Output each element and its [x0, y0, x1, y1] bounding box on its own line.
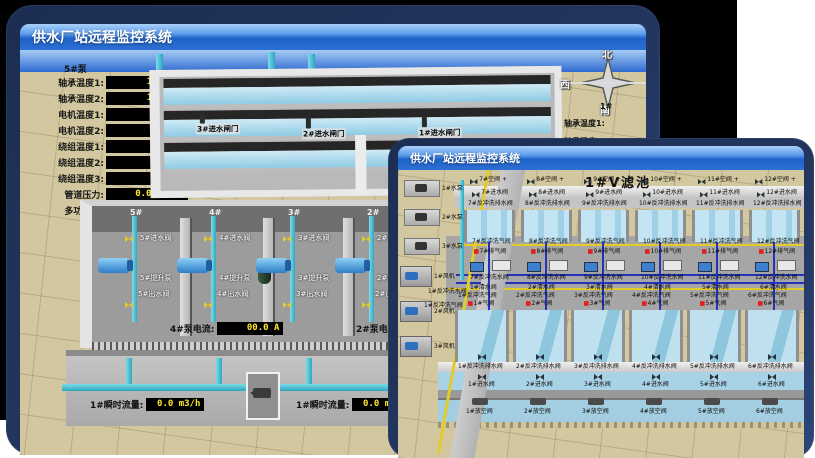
- inlet-valve-label: 3#进水阀: [298, 234, 329, 242]
- air-valve-label: 8#空阀 +: [527, 176, 564, 182]
- empty-valve-label: 2#放空阀: [524, 408, 551, 414]
- inlet-valve-label: 4#进水阀: [642, 381, 669, 387]
- bw-drain-valve-label: 4#反冲洗排水阀: [632, 363, 677, 369]
- bw-air-valve-label: 10#反冲洗气阀: [643, 238, 686, 244]
- air-valve-label: 6#气阀: [758, 300, 784, 306]
- inlet-valve-label: 6#进水阀: [758, 381, 785, 387]
- valve-actuator[interactable]: [698, 262, 712, 272]
- desktop: { "back_window": { "title": "供水厂站远程监控系统"…: [0, 0, 815, 420]
- front-window-title: 供水厂站远程监控系统: [410, 150, 520, 166]
- bw-air-valve-label: 7#反冲洗气阀: [472, 238, 511, 244]
- bw-drain-valve-label: 1#反冲洗排水阀: [458, 363, 503, 369]
- blower-list: 1#风机 2#风机 3#风机: [400, 266, 457, 371]
- exhaust-valve-label: 10#排气阀: [645, 248, 681, 254]
- back-window-titlebar[interactable]: 供水厂站远程监控系统: [20, 24, 646, 50]
- front-window-card: 供水厂站远程监控系统 1#V滤池: [388, 138, 814, 458]
- exhaust-valve-label: 11#排气阀: [702, 248, 738, 254]
- air-valve-icon[interactable]: [758, 301, 763, 306]
- clear-water-valve-label: 3#清水阀: [586, 284, 613, 290]
- pump-platform: [404, 180, 440, 197]
- drain-pump-icon[interactable]: [472, 398, 488, 405]
- exhaust-valve-icon[interactable]: [759, 249, 764, 254]
- gate-label: 1#进水闸门: [418, 127, 462, 138]
- bw-drain-valve-label: 12#反冲洗排水阀: [753, 200, 802, 206]
- pump-list: 1#水泵 2#水泵 3#水泵: [404, 180, 465, 267]
- clear-water-valve-label: 5#清水阀: [702, 284, 729, 290]
- bw-water-valve-label: 10#反冲洗水阀: [641, 274, 684, 280]
- flow-value: 0.0 m3/h: [146, 398, 204, 411]
- motor-icon: [405, 272, 418, 280]
- outlet-valve-label: 4#出水阀: [217, 290, 248, 298]
- air-valve-label: 11#空阀 +: [698, 176, 739, 182]
- pump-platform: [404, 238, 440, 255]
- air-valve-label: 5#气阀: [700, 300, 726, 306]
- partial-readout-label: 轴承温度1:: [564, 118, 605, 129]
- exhaust-valve-icon[interactable]: [474, 249, 479, 254]
- water-pump[interactable]: 1#水泵: [404, 180, 465, 197]
- bw-drain-valve-label: 2#反冲洗排水阀: [516, 363, 561, 369]
- lift-pump[interactable]: [256, 258, 288, 273]
- blower-label: 1#风机: [434, 273, 455, 279]
- empty-valve-label: 3#放空阀: [582, 408, 609, 414]
- motor-icon: [405, 307, 418, 315]
- current-label: 4#泵电流:: [170, 322, 214, 335]
- readout-label: 轴承温度2:: [22, 92, 106, 105]
- booster-station[interactable]: [246, 372, 280, 420]
- readout-label: 绕组温度3:: [22, 172, 106, 185]
- filter-cell-column: 3#清水阀 3#反冲洗气阀 3#气阀 3#反冲洗排水阀 3#进水阀 3#放空阀: [570, 284, 628, 424]
- bw-water-valve-label: 8#反冲洗水阀: [527, 274, 566, 280]
- lift-pump-label: 5#提升泵: [140, 274, 171, 282]
- pump-platform: [404, 209, 440, 226]
- exhaust-valve-label: 9#排气阀: [588, 248, 620, 254]
- inlet-valve-label: 2#进水阀: [526, 381, 553, 387]
- outlet-valve-label: 5#出水阀: [138, 290, 169, 298]
- exhaust-valve-icon[interactable]: [531, 249, 536, 254]
- partial-tag: 1#: [600, 102, 612, 111]
- bw-air-valve-label: 11#反冲洗气阀: [700, 238, 743, 244]
- valve-actuator[interactable]: [755, 262, 769, 272]
- water-pump-label: 2#水泵: [442, 214, 463, 220]
- bw-water-valve-label: 7#反冲洗水阀: [470, 274, 509, 280]
- lift-pump-label: 4#提升泵: [219, 274, 250, 282]
- exhaust-valve-label: 7#排气阀: [474, 248, 506, 254]
- flow-readout-left: 1#瞬时流量: 0.0 m3/h: [90, 398, 204, 411]
- bw-air-valve-label: 8#反冲洗气阀: [529, 238, 568, 244]
- pump-bay: 4# 4#进水阀 4#提升泵 4#出水阀: [175, 206, 254, 326]
- air-valve-icon[interactable]: [700, 301, 705, 306]
- water-pump-label: 1#水泵: [442, 185, 463, 191]
- valve-actuator[interactable]: [527, 262, 541, 272]
- inlet-valve-label: 12#进水阀: [757, 189, 797, 195]
- gate-label: 2#进水闸门: [302, 128, 346, 139]
- bw-air-valve-label: 2#反冲洗气阀: [516, 292, 555, 298]
- bw-air-valve-label: 3#反冲洗气阀: [574, 292, 613, 298]
- air-valve-label: 9#空阀 +: [584, 176, 621, 182]
- valve-actuator[interactable]: [584, 262, 598, 272]
- water-pump-label: 3#水泵: [442, 243, 463, 249]
- filter-cell-column: 1#清水阀 1#反冲洗气阀 1#气阀 1#反冲洗排水阀 1#进水阀 1#放空阀: [454, 284, 512, 424]
- lift-pump[interactable]: [177, 258, 209, 273]
- clear-water-valve-label: 6#清水阀: [760, 284, 787, 290]
- bottom-cell-grid: 1#清水阀 1#反冲洗气阀 1#气阀 1#反冲洗排水阀 1#进水阀 1#放空阀 …: [454, 284, 802, 424]
- bw-water-valve-label: 9#反冲洗水阀: [584, 274, 623, 280]
- valve-actuator[interactable]: [470, 262, 484, 272]
- drain-pump-icon[interactable]: [530, 398, 546, 405]
- inlet-valve-label: 5#进水阀: [140, 234, 171, 242]
- empty-valve-label: 5#放空阀: [698, 408, 725, 414]
- air-valve-label: 1#气阀: [468, 300, 494, 306]
- current-readout-left: 4#泵电流: 00.0 A: [170, 322, 283, 335]
- readout-label: 电机温度2:: [22, 124, 106, 137]
- clear-water-valve-label: 1#清水阀: [470, 284, 497, 290]
- blower[interactable]: 3#风机: [400, 336, 457, 357]
- blower-box: [400, 336, 432, 357]
- readout-label: 管道压力:: [22, 188, 106, 201]
- pump-icon: [415, 213, 427, 221]
- air-valve-icon[interactable]: [642, 301, 647, 306]
- air-valve-label: 10#空阀 +: [641, 176, 682, 182]
- compass-north: 北: [602, 50, 612, 61]
- gate-valve-icon[interactable]: [422, 116, 427, 127]
- water-pump[interactable]: 3#水泵: [404, 238, 465, 255]
- flow-label: 1#瞬时流量:: [90, 398, 143, 411]
- inlet-valve-label: 11#进水阀: [700, 189, 740, 195]
- air-valve-icon[interactable]: [584, 301, 589, 306]
- console-box[interactable]: [606, 260, 625, 271]
- bw-drain-valve-label: 6#反冲洗排水阀: [748, 363, 793, 369]
- outlet-valve-label: 3#出水阀: [296, 290, 327, 298]
- inlet-valve-label: 10#进水阀: [643, 189, 683, 195]
- inlet-valve-label: 1#进水阀: [468, 381, 495, 387]
- empty-valve-label: 1#放空阀: [466, 408, 493, 414]
- flow-label: 1#瞬时流量:: [296, 398, 349, 411]
- inlet-valve-label: 9#进水阀: [586, 189, 622, 195]
- exhaust-valve-icon[interactable]: [645, 249, 650, 254]
- air-valve-label: 7#空阀 +: [470, 176, 507, 182]
- clear-water-valve-label: 2#清水阀: [528, 284, 555, 290]
- filter-cell-column: 2#清水阀 2#反冲洗气阀 2#气阀 2#反冲洗排水阀 2#进水阀 2#放空阀: [512, 284, 570, 424]
- inlet-gate[interactable]: 1#进水闸门: [418, 116, 462, 138]
- readout-label: 轴承温度1:: [22, 76, 106, 89]
- empty-valve-label: 6#放空阀: [756, 408, 783, 414]
- bw-drain-valve-label: 3#反冲洗排水阀: [574, 363, 619, 369]
- pump-icon: [253, 388, 271, 398]
- drain-pump-icon[interactable]: [762, 398, 778, 405]
- console-box[interactable]: [777, 260, 796, 271]
- valve-actuator[interactable]: [641, 262, 655, 272]
- pump-icon: [415, 242, 427, 250]
- bw-air-valve-label: 9#反冲洗气阀: [586, 238, 625, 244]
- inlet-valve-label: 4#进水阀: [219, 234, 250, 242]
- drain-pump-icon[interactable]: [646, 398, 662, 405]
- motor-icon: [405, 342, 418, 350]
- bw-air-valve-label: 5#反冲洗气阀: [690, 292, 729, 298]
- console-box[interactable]: [492, 260, 511, 271]
- lift-pump-label: 3#提升泵: [298, 274, 329, 282]
- inlet-gate[interactable]: 3#进水闸门: [196, 112, 240, 134]
- bw-air-valve-label: 6#反冲洗气阀: [748, 292, 787, 298]
- blower-label: 2#风机: [434, 308, 455, 314]
- pump-icon: [415, 184, 427, 192]
- bw-drain-valve-label: 5#反冲洗排水阀: [690, 363, 735, 369]
- blower-label: 3#风机: [434, 343, 455, 349]
- air-valve-label: 12#空阀 +: [755, 176, 796, 182]
- drain-pump-icon[interactable]: [704, 398, 720, 405]
- gate-label: 3#进水闸门: [196, 123, 240, 134]
- exhaust-valve-icon[interactable]: [702, 249, 707, 254]
- blower-box: [400, 266, 432, 287]
- air-valve-icon[interactable]: [526, 301, 531, 306]
- lift-pump[interactable]: [335, 258, 367, 273]
- air-valve-label: 4#气阀: [642, 300, 668, 306]
- bw-drain-valve-label: 10#反冲洗排水阀: [639, 200, 688, 206]
- lift-pump[interactable]: [98, 258, 130, 273]
- gate-valve-icon[interactable]: [306, 117, 311, 128]
- gate-valve-icon[interactable]: [200, 113, 205, 124]
- pump-bay: 5# 5#进水阀 5#提升泵 5#出水阀: [96, 206, 175, 326]
- pump-bays: 5# 5#进水阀 5#提升泵 5#出水阀 4# 4#进水阀 4#提升泵: [96, 206, 412, 326]
- drain-pump-icon[interactable]: [588, 398, 604, 405]
- bw-air-valve-label: 1#反冲洗气阀: [458, 292, 497, 298]
- water-pump[interactable]: 2#水泵: [404, 209, 465, 226]
- filter-cell-column: 6#清水阀 6#反冲洗气阀 6#气阀 6#反冲洗排水阀 6#进水阀 6#放空阀: [744, 284, 802, 424]
- console-box[interactable]: [663, 260, 682, 271]
- bw-drain-valve-label: 9#反冲洗排水阀: [582, 200, 627, 206]
- inlet-valve-label: 8#进水阀: [529, 189, 565, 195]
- bw-water-valve-label: 11#反冲洗水阀: [698, 274, 741, 280]
- compass-west: 西: [560, 76, 570, 91]
- filter-scene: 1#V滤池 1#水泵 2#水泵 3#水泵: [398, 170, 804, 458]
- clear-water-valve-label: 4#清水阀: [644, 284, 671, 290]
- air-valve-label: 3#气阀: [584, 300, 610, 306]
- readout-label: 电机温度1:: [22, 108, 106, 121]
- front-window: 供水厂站远程监控系统 1#V滤池: [398, 146, 804, 458]
- air-valve-icon[interactable]: [468, 301, 473, 306]
- front-window-titlebar[interactable]: 供水厂站远程监控系统: [398, 146, 804, 170]
- filter-cell-column: 5#清水阀 5#反冲洗气阀 5#气阀 5#反冲洗排水阀 5#进水阀 5#放空阀: [686, 284, 744, 424]
- bw-drain-valve-label: 8#反冲洗排水阀: [525, 200, 570, 206]
- console-box[interactable]: [720, 260, 739, 271]
- bw-drain-valve-label: 7#反冲洗排水阀: [468, 200, 513, 206]
- bw-air-valve-label: 4#反冲洗气阀: [632, 292, 671, 298]
- blower[interactable]: 1#风机: [400, 266, 457, 287]
- bw-drain-valve-label: 11#反冲洗排水阀: [696, 200, 745, 206]
- readout-label: 绕组温度1:: [22, 140, 106, 153]
- bw-water-valve-label: 12#反冲洗水阀: [755, 274, 798, 280]
- bw-air-valve-label: 12#反冲洗气阀: [757, 238, 800, 244]
- back-window-title: 供水厂站远程监控系统: [32, 27, 172, 47]
- readout-label: 绕组温度2:: [22, 156, 106, 169]
- console-box[interactable]: [549, 260, 568, 271]
- filter-cell-column: 4#清水阀 4#反冲洗气阀 4#气阀 4#反冲洗排水阀 4#进水阀 4#放空阀: [628, 284, 686, 424]
- current-value: 00.0 A: [217, 322, 283, 335]
- inlet-valve-label: 3#进水阀: [584, 381, 611, 387]
- exhaust-valve-label: 12#排气阀: [759, 248, 795, 254]
- inlet-gate[interactable]: 2#进水闸门: [302, 117, 346, 139]
- inlet-valve-label: 7#进水阀: [472, 189, 508, 195]
- air-valve-label: 2#气阀: [526, 300, 552, 306]
- exhaust-valve-label: 8#排气阀: [531, 248, 563, 254]
- inlet-valve-label: 5#进水阀: [700, 381, 727, 387]
- exhaust-valve-icon[interactable]: [588, 249, 593, 254]
- empty-valve-label: 4#放空阀: [640, 408, 667, 414]
- pump-bay: 3# 3#进水阀 3#提升泵 3#出水阀: [254, 206, 333, 326]
